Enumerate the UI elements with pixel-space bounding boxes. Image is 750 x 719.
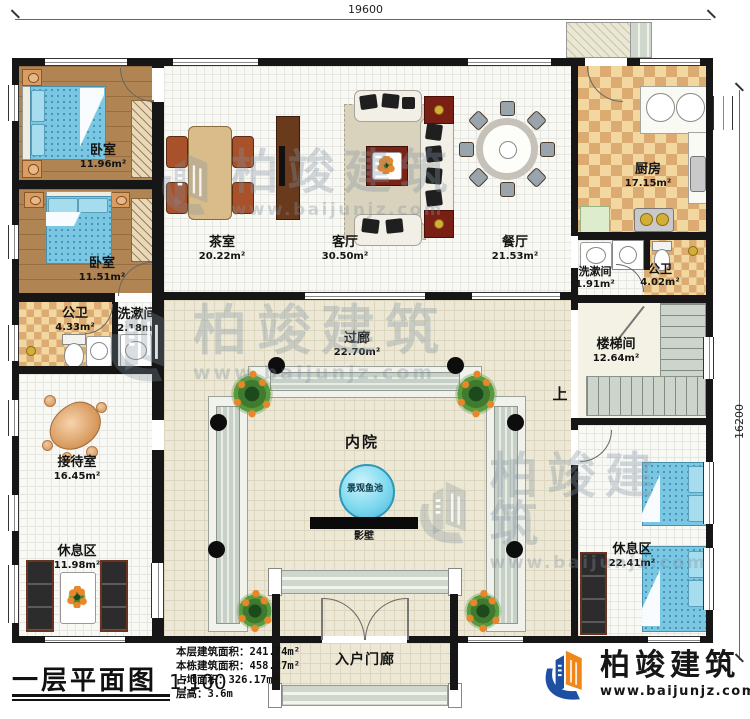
room-label-tea-room: 茶室 20.22m² [199, 236, 245, 262]
chair [232, 182, 254, 214]
kitchen-island [580, 206, 610, 234]
company-logo: 柏竣建筑 www.baijunjz.com [536, 646, 750, 704]
stat-label: 占地面积： [176, 674, 229, 686]
room-name: 客厅 [332, 236, 358, 251]
washing-machine-drum [619, 246, 637, 264]
pebble [96, 402, 107, 413]
room-label-screen-wall: 影壁 [354, 531, 374, 543]
screen-wall [310, 517, 418, 529]
window [468, 58, 551, 66]
north-porch-steps [630, 22, 652, 58]
bed-pillow [78, 198, 108, 213]
room-name: 卧室 [90, 144, 116, 159]
room-area: 4.33m² [55, 322, 94, 334]
wall-segment [571, 465, 578, 636]
toilet [64, 343, 84, 368]
wall-segment [578, 418, 713, 425]
room-label-living-room: 客厅 30.50m² [322, 236, 368, 262]
window [703, 337, 714, 379]
nightstand [24, 192, 44, 208]
room-name: 楼梯间 [596, 338, 635, 353]
table-flowers [66, 586, 88, 608]
company-logo-icon [536, 646, 592, 704]
room-label-bedroom-1: 卧室 11.96m² [80, 144, 126, 170]
room-name: 接待室 [57, 456, 96, 471]
dining-table-center [499, 141, 517, 159]
nightstand [22, 160, 42, 178]
stat-label: 本层建筑面积： [176, 646, 250, 658]
room-label-entry-porch: 入户门廊 [335, 652, 395, 668]
sofa-cushion [402, 97, 415, 109]
tea-room-table [188, 126, 232, 220]
sofa-cushion [425, 123, 443, 141]
floor-mat-medallion [434, 219, 444, 229]
room-label-fish-pond: 景观鱼池 [347, 484, 383, 494]
room-area: 21.53m² [492, 251, 538, 263]
room-area: 1.91m² [575, 279, 614, 291]
room-area: 2.18m² [117, 323, 156, 335]
kitchen-sink [646, 93, 675, 122]
room-label-stairwell: 楼梯间 12.64m² [593, 338, 639, 364]
stove-burner [656, 213, 669, 226]
room-name: 景观鱼池 [347, 484, 383, 494]
room-label-rest-2: 休息区 22.41m² [609, 543, 655, 569]
column [447, 357, 464, 374]
wall-segment [578, 232, 706, 240]
room-name: 入户门廊 [335, 652, 395, 668]
up-text: 上 [552, 386, 567, 403]
sofa-cushion [425, 189, 443, 207]
window [151, 563, 164, 618]
dining-chair [500, 182, 515, 197]
stair-landing [660, 303, 706, 378]
room-area: 11.98m² [54, 560, 100, 572]
room-name: 影壁 [354, 531, 374, 543]
room-area: 20.22m² [199, 251, 245, 263]
sofa-cushion [361, 218, 380, 234]
window [8, 400, 19, 436]
room-area: 17.15m² [625, 178, 671, 190]
window [305, 292, 425, 300]
stat-value: 326.17m² [229, 674, 280, 686]
potted-plant [226, 368, 278, 420]
stat-value: 3.6m [208, 688, 233, 700]
dimension-tick [707, 9, 716, 18]
room-name: 休息区 [612, 543, 651, 558]
nightstand [22, 69, 42, 86]
stat-label: 层高： [176, 688, 208, 700]
window [8, 85, 19, 121]
column [208, 541, 225, 558]
window [8, 565, 19, 623]
room-name: 内院 [345, 434, 379, 451]
room-label-corridor: 过廊 22.70m² [334, 332, 380, 358]
company-name: 柏竣建筑 [600, 651, 750, 681]
room-label-bath-2: 公卫 4.02m² [640, 263, 679, 288]
company-logo-text: 柏竣建筑 www.baijunjz.com [600, 651, 750, 699]
room-label-wash-2: 洗漱间 1.91m² [575, 266, 614, 290]
wall-segment [571, 58, 578, 236]
room-area: 12.64m² [593, 353, 639, 365]
dimension-tick [11, 9, 20, 18]
table-plant [377, 156, 395, 174]
room-name: 洗漱间 [578, 266, 611, 279]
potted-plant [460, 588, 506, 634]
wardrobe [131, 100, 154, 178]
column [210, 414, 227, 431]
floor-plan-canvas: 19600 16200 [0, 0, 750, 719]
dimension-top-label: 19600 [348, 3, 383, 16]
stat-label: 本栋建筑面积： [176, 660, 250, 672]
title-underline [12, 694, 170, 697]
sofa-cushion [425, 167, 442, 184]
window [8, 495, 19, 531]
chair [232, 136, 254, 168]
dining-chair [540, 142, 555, 157]
room-name: 厨房 [635, 163, 661, 178]
stair-up-label: 上 [552, 386, 567, 403]
wall-segment [152, 102, 164, 420]
window [8, 325, 19, 361]
room-name: 公卫 [648, 263, 672, 277]
column [268, 357, 285, 374]
tv [279, 146, 285, 186]
room-name: 餐厅 [502, 236, 528, 251]
plan-stats: 本层建筑面积：241.74m² 本栋建筑面积：458.27m² 占地面积：326… [176, 645, 300, 701]
dimension-right-label: 16200 [733, 404, 746, 439]
prep-sink [690, 156, 706, 192]
wash-basin [125, 341, 147, 360]
wall-segment [578, 295, 713, 303]
walkway-top-deck [270, 372, 460, 391]
room-area: 22.41m² [609, 558, 655, 570]
plan-title: 一层平面图 [12, 660, 157, 697]
bed-pillow [31, 124, 45, 156]
stat-row: 本栋建筑面积：458.27m² [176, 659, 300, 673]
room-name: 公卫 [62, 307, 88, 322]
room-label-dining-room: 餐厅 21.53m² [492, 236, 538, 262]
window [472, 292, 560, 300]
dimension-line-right [739, 90, 740, 660]
stat-value: 241.74m² [250, 646, 301, 658]
room-label-bedroom-2: 卧室 11.51m² [79, 257, 125, 283]
wall-segment [19, 293, 115, 302]
room-label-reception: 接待室 16.45m² [54, 456, 100, 482]
room-label-wash-1: 洗漱间 2.18m² [117, 308, 156, 334]
room-area: 11.96m² [80, 159, 126, 171]
floor-drain [688, 246, 698, 256]
window [45, 636, 125, 643]
bed-sheet-fold [642, 464, 660, 522]
cabinet [580, 552, 607, 635]
stat-row: 本层建筑面积：241.74m² [176, 645, 300, 659]
stove-burner [640, 213, 653, 226]
bay-window [713, 96, 733, 130]
room-area: 11.51m² [79, 272, 125, 284]
sofa [26, 560, 54, 632]
bed-pillow [48, 198, 78, 213]
bath-sink-basin [90, 342, 108, 360]
chair [166, 182, 188, 214]
room-area: 16.45m² [54, 471, 100, 483]
sofa-cushion [381, 93, 399, 109]
room-area: 4.02m² [640, 277, 679, 289]
room-area: 30.50m² [322, 251, 368, 263]
stat-row: 占地面积：326.17m² [176, 673, 300, 687]
wardrobe [131, 198, 154, 262]
room-label-kitchen: 厨房 17.15m² [625, 163, 671, 189]
window [173, 58, 258, 66]
wash-basin [586, 247, 606, 264]
dining-chair [500, 101, 515, 116]
stat-value: 458.27m² [250, 660, 301, 672]
window [703, 462, 714, 524]
dimension-line-top [15, 19, 711, 20]
stat-row: 层高：3.6m [176, 687, 300, 701]
north-porch-slab [566, 22, 632, 58]
room-label-bath-1: 公卫 4.33m² [55, 307, 94, 333]
room-label-rest-1: 休息区 11.98m² [54, 545, 100, 571]
room-area: 22.70m² [334, 347, 380, 359]
pebble [44, 395, 56, 407]
room-name: 过廊 [344, 332, 370, 347]
column [507, 414, 524, 431]
pebble [42, 440, 53, 451]
potted-plant [450, 368, 502, 420]
sofa-cushion [425, 145, 443, 163]
floor-mat-medallion [434, 105, 444, 115]
wall-segment [19, 366, 152, 374]
stair-flight [586, 376, 706, 416]
room-label-courtyard: 内院 [345, 434, 379, 451]
sofa-cushion [385, 218, 403, 234]
kitchen-sink [676, 93, 705, 122]
title-underline [12, 699, 170, 701]
window [648, 636, 700, 643]
dining-chair [459, 142, 474, 157]
window [8, 225, 19, 259]
window [45, 58, 127, 66]
room-name: 卧室 [89, 257, 115, 272]
chair [166, 136, 188, 168]
porch-steps-inner [270, 570, 460, 594]
wall-segment [152, 58, 164, 68]
window [468, 636, 523, 643]
bed-pillow [31, 90, 45, 122]
bed-sheet-fold [46, 212, 110, 226]
sofa [100, 560, 128, 632]
door-leaf [407, 598, 409, 640]
column [506, 541, 523, 558]
sofa-cushion [359, 94, 378, 110]
room-name: 茶室 [209, 236, 235, 251]
porch-steps-outer [282, 685, 448, 706]
room-name: 洗漱间 [117, 308, 156, 323]
window [703, 548, 714, 610]
nightstand [110, 192, 130, 208]
company-url: www.baijunjz.com [600, 684, 750, 699]
wall-segment [19, 180, 152, 189]
floor-drain [26, 346, 36, 356]
wall-segment [571, 418, 578, 430]
window [640, 58, 700, 66]
room-name: 休息区 [57, 545, 96, 560]
